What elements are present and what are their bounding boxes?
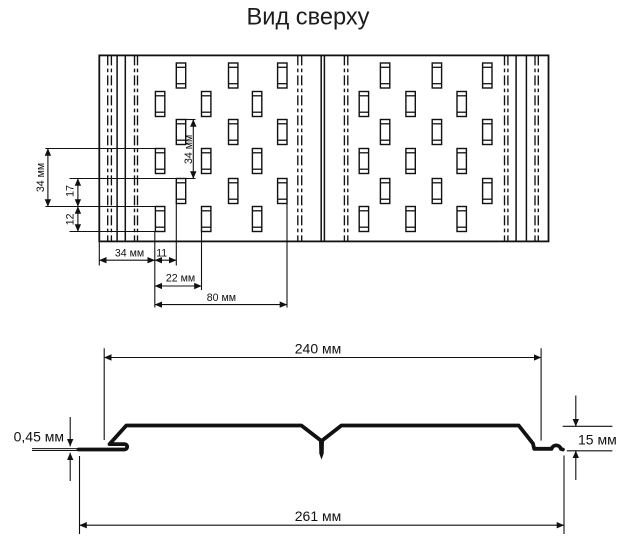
svg-text:240 мм: 240 мм xyxy=(295,341,342,357)
svg-text:12: 12 xyxy=(65,213,77,225)
svg-text:Вид сверху: Вид сверху xyxy=(247,5,370,31)
svg-text:34 мм: 34 мм xyxy=(115,247,144,259)
svg-text:80 мм: 80 мм xyxy=(207,292,236,304)
svg-text:17: 17 xyxy=(65,185,77,197)
svg-text:261 мм: 261 мм xyxy=(295,508,342,524)
svg-text:0,45 мм: 0,45 мм xyxy=(14,429,64,445)
svg-text:34 мм: 34 мм xyxy=(35,163,47,192)
svg-text:11: 11 xyxy=(156,247,167,259)
svg-text:15 мм: 15 мм xyxy=(578,431,617,447)
svg-text:22 мм: 22 мм xyxy=(166,273,195,285)
svg-text:34 мм: 34 мм xyxy=(183,135,195,164)
